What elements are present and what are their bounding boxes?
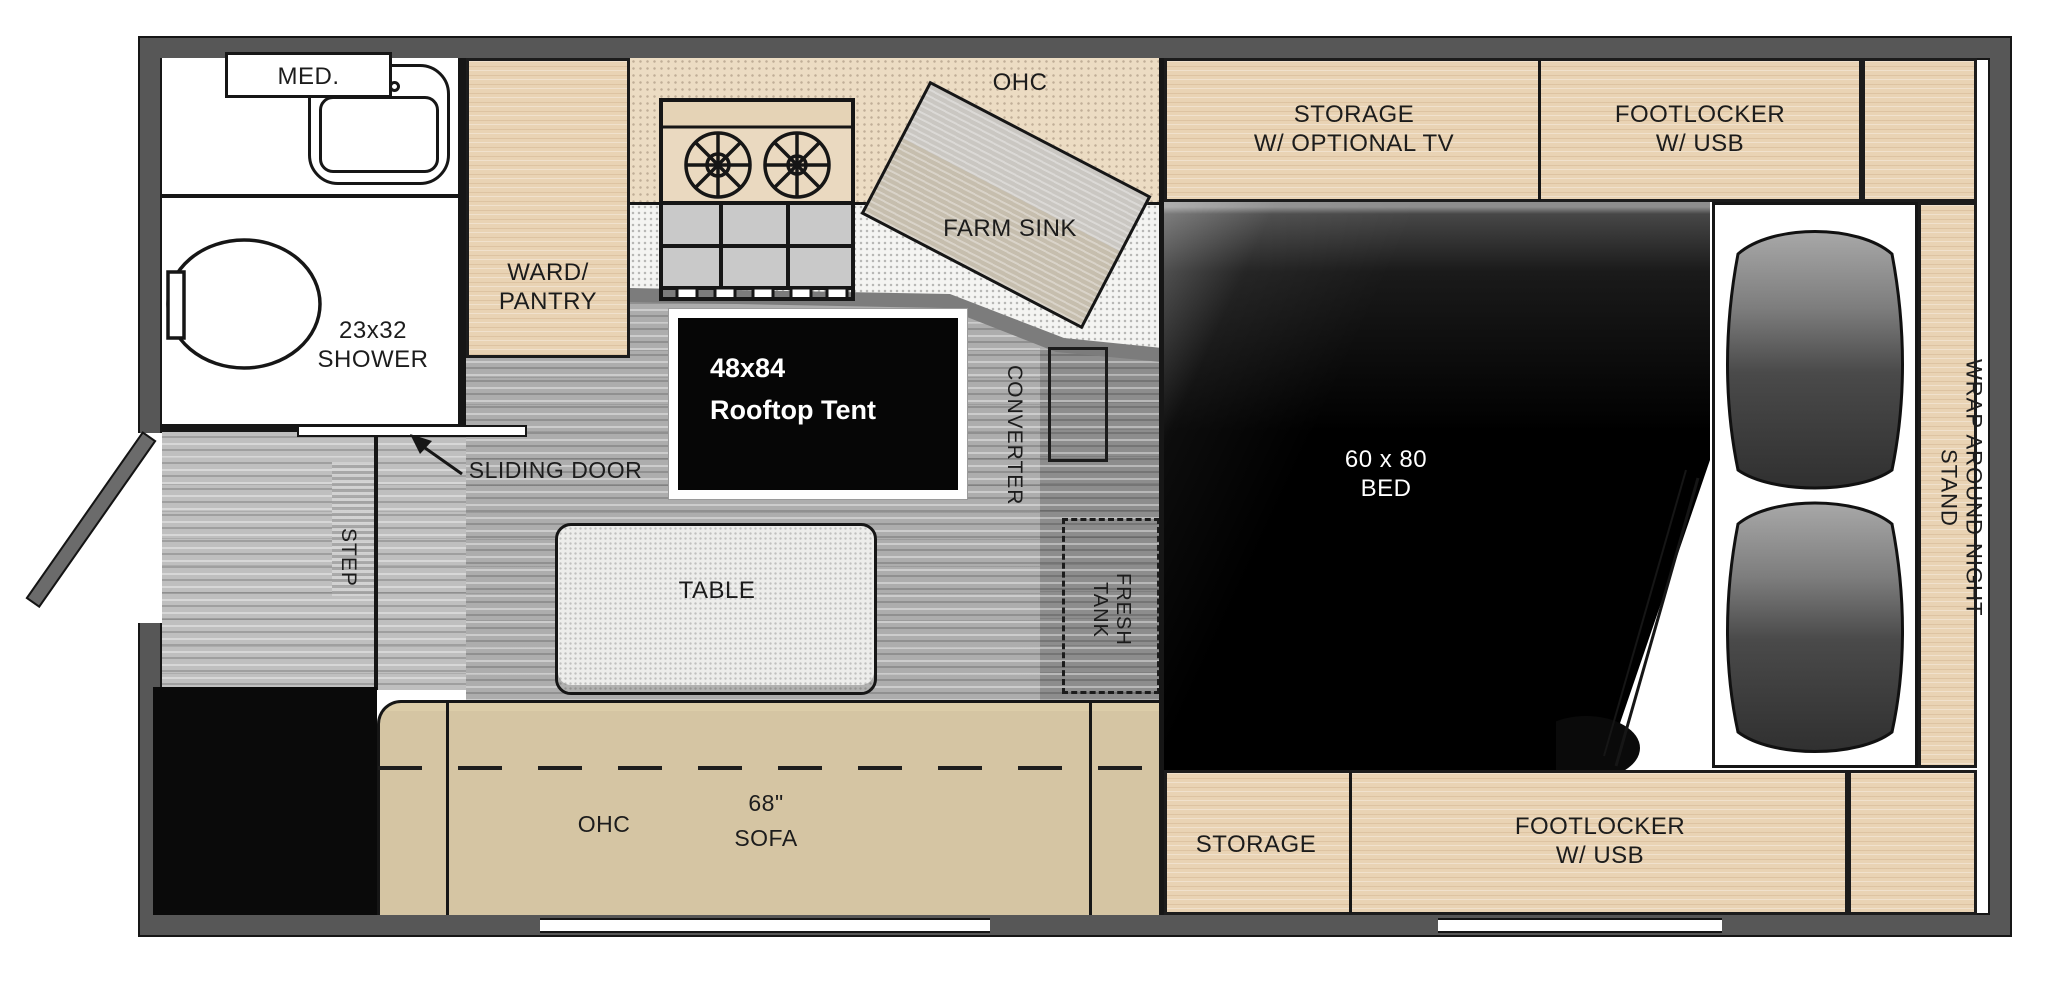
converter-unit (1048, 347, 1108, 462)
pantry-line1: WARD/ (468, 258, 628, 287)
storage-tv-label: STORAGE W/ OPTIONAL TV (1204, 100, 1504, 159)
rooftop-tent: 48x84 Rooftop Tent (669, 309, 967, 499)
camper-floorplan: MED. 23x32 SHOWER WARD/ PANTRY (0, 0, 2048, 987)
storage-bottom-label: STORAGE (1186, 830, 1326, 859)
storage-tv-line1: STORAGE (1204, 100, 1504, 129)
night-stand-bottom (1848, 770, 1977, 915)
bed-label: 60 x 80 BED (1286, 445, 1486, 504)
pantry-line2: PANTRY (468, 287, 628, 316)
footlocker-bottom-line2: W/ USB (1460, 841, 1740, 870)
shower-text: SHOWER (293, 345, 453, 374)
window-sofa (540, 918, 990, 933)
entry-step-well (153, 687, 377, 915)
shower-label: 23x32 SHOWER (293, 316, 453, 375)
window-bedroom (1438, 918, 1722, 933)
med-label: MED. (225, 62, 392, 91)
bed-text: BED (1286, 474, 1486, 503)
fresh-line2: TANK (1088, 552, 1111, 667)
slide-out-dash-line (378, 766, 1148, 770)
sofa-arm-right-line (1089, 702, 1092, 915)
fresh-line1: FRESH (1111, 552, 1134, 667)
table-label: TABLE (627, 576, 807, 605)
shower-size: 23x32 (293, 316, 453, 345)
step-label: STEP (336, 512, 360, 602)
tent-name: Rooftop Tent (710, 390, 876, 432)
bathroom-right-wall (458, 58, 466, 432)
top-cabinet-divider (1538, 60, 1541, 200)
sofa-ohc-label: OHC (564, 810, 644, 838)
bottom-cabinet-divider (1349, 772, 1352, 913)
cushion-bottom (1728, 503, 1903, 752)
bed-blanket-fold (1556, 448, 1712, 770)
ward-pantry-label: WARD/ PANTRY (468, 258, 628, 317)
tent-size: 48x84 (710, 348, 876, 390)
sofa-label: SOFA (726, 824, 806, 852)
sliding-door-label: SLIDING DOOR (448, 456, 663, 484)
fresh-tank-label: FRESH TANK (1088, 552, 1134, 667)
converter-label: CONVERTER (1002, 350, 1026, 520)
ohc-kitchen-label: OHC (980, 68, 1060, 97)
farm-sink-label: FARM SINK (910, 214, 1110, 243)
bed-size: 60 x 80 (1286, 445, 1486, 474)
footlocker-top-line2: W/ USB (1560, 129, 1840, 158)
stove-cooktop-icon (659, 98, 855, 302)
footlocker-bottom-line1: FOOTLOCKER (1460, 812, 1740, 841)
seat-cushions (1712, 202, 1918, 768)
footlocker-top-label: FOOTLOCKER W/ USB (1560, 100, 1840, 159)
rooftop-tent-label: 48x84 Rooftop Tent (710, 348, 876, 432)
cushion-top (1728, 232, 1903, 489)
sofa-size-label: 68" (726, 789, 806, 817)
footlocker-top-line1: FOOTLOCKER (1560, 100, 1840, 129)
dinette-table (555, 523, 877, 695)
night-stand-label: WRAP AROUND NIGHT STAND (1936, 318, 1987, 658)
bathroom-sink-basin (319, 96, 439, 173)
storage-tv-line2: W/ OPTIONAL TV (1204, 129, 1504, 158)
footlocker-bottom-label: FOOTLOCKER W/ USB (1460, 812, 1740, 871)
bathroom-divider-wall (162, 194, 458, 198)
step-wall-line (374, 433, 378, 690)
night-stand-top (1862, 58, 1977, 202)
sofa-arm-left-line (446, 702, 449, 915)
